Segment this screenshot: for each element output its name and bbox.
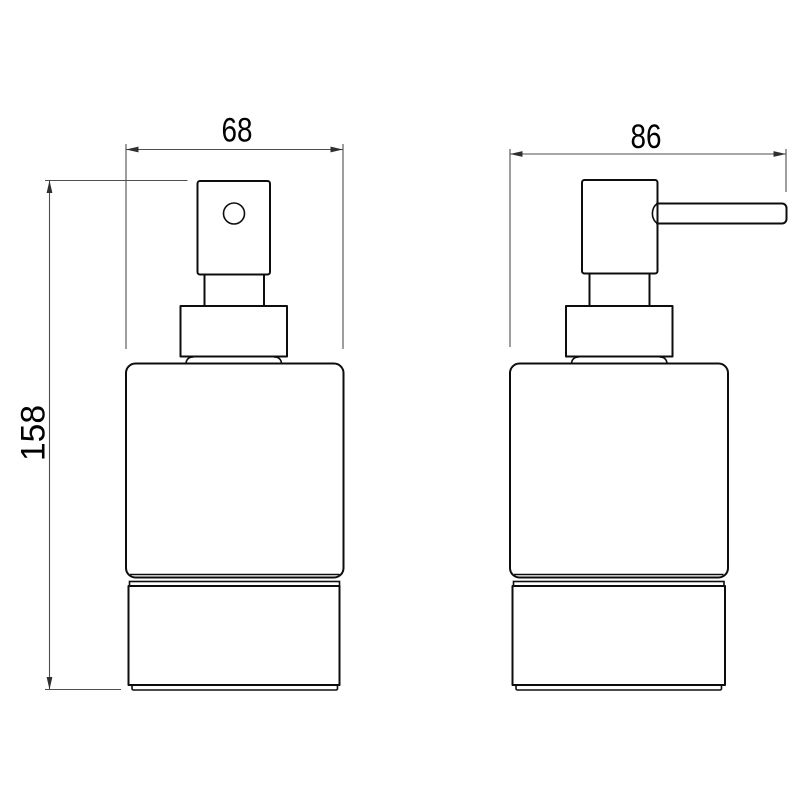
technical-drawing: 68 86 158 bbox=[0, 0, 800, 800]
pump-head-side bbox=[582, 180, 658, 274]
base-holder-front bbox=[129, 586, 340, 685]
dimension-label-front-width: 68 bbox=[222, 112, 253, 150]
dimension-side-depth: 86 bbox=[510, 118, 786, 347]
base-holder-side bbox=[513, 586, 726, 685]
pump-neck-front bbox=[205, 275, 265, 307]
bottle-body-front bbox=[126, 364, 344, 578]
side-view bbox=[510, 180, 787, 690]
pump-neck-side bbox=[590, 274, 650, 307]
dimension-height: 158 bbox=[15, 181, 188, 690]
base-bottom-lip-front bbox=[132, 685, 338, 690]
bottle-body-side bbox=[510, 364, 728, 578]
arrowhead-left-icon bbox=[510, 151, 523, 157]
arrowhead-right-icon bbox=[774, 151, 787, 157]
pump-collar-side bbox=[566, 306, 673, 357]
dimension-label-side-depth: 86 bbox=[631, 118, 662, 156]
dimension-front-width: 68 bbox=[126, 112, 343, 350]
drawing-canvas: 68 86 158 bbox=[0, 0, 800, 800]
arrowhead-bottom-icon bbox=[47, 677, 53, 690]
arrowhead-top-icon bbox=[47, 181, 53, 194]
pump-head-front bbox=[198, 181, 271, 275]
dimension-label-height: 158 bbox=[15, 405, 53, 461]
base-bottom-lip-side bbox=[516, 685, 722, 690]
arrowhead-right-icon bbox=[331, 147, 344, 153]
arrowhead-left-icon bbox=[126, 147, 139, 153]
spout bbox=[657, 204, 787, 224]
spray-outlet-hole bbox=[224, 203, 245, 224]
front-view bbox=[126, 181, 344, 690]
pump-collar-front bbox=[181, 306, 288, 357]
